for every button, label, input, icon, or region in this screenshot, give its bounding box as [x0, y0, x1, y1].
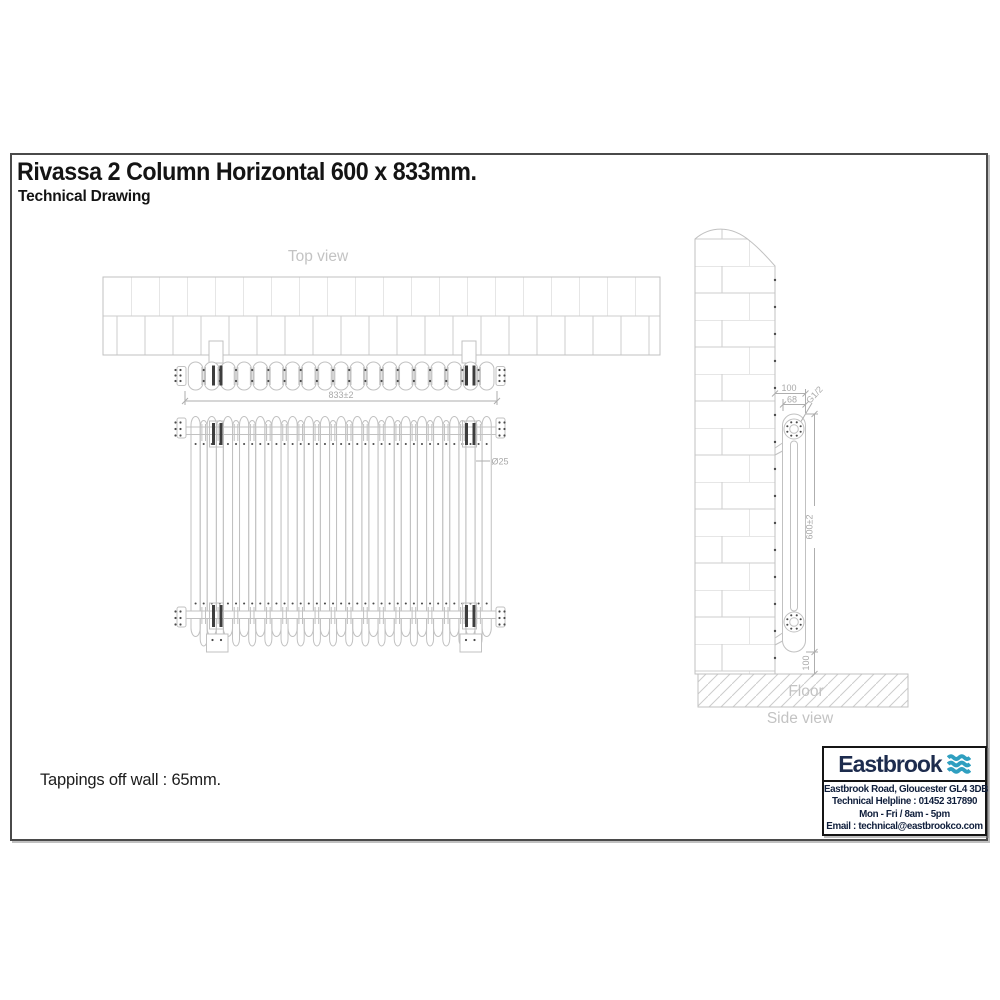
brand-wave-icon: [947, 754, 971, 774]
page-subtitle: Technical Drawing: [18, 188, 150, 206]
brand-address-block: Eastbrook Road, Gloucester GL4 3DB Techn…: [824, 782, 985, 834]
hours-line: Mon - Fri / 8am - 5pm: [824, 809, 985, 820]
address-line: Eastbrook Road, Gloucester GL4 3DB: [824, 784, 985, 795]
brand-row: Eastbrook: [824, 748, 985, 782]
email-line: Email : technical@eastbrookco.com: [824, 821, 985, 832]
page-title: Rivassa 2 Column Horizontal 600 x 833mm.: [17, 158, 477, 187]
helpline-line: Technical Helpline : 01452 317890: [824, 796, 985, 807]
brand-logo-text: Eastbrook: [838, 751, 941, 778]
tappings-note: Tappings off wall : 65mm.: [40, 771, 221, 790]
page: Top view 833±2 Ø25 100 68 G1/2 600±2 100…: [0, 0, 1000, 1000]
drawing-frame: [10, 153, 988, 841]
manufacturer-box: Eastbrook Eastbrook Road, Gloucester GL4…: [822, 746, 987, 836]
